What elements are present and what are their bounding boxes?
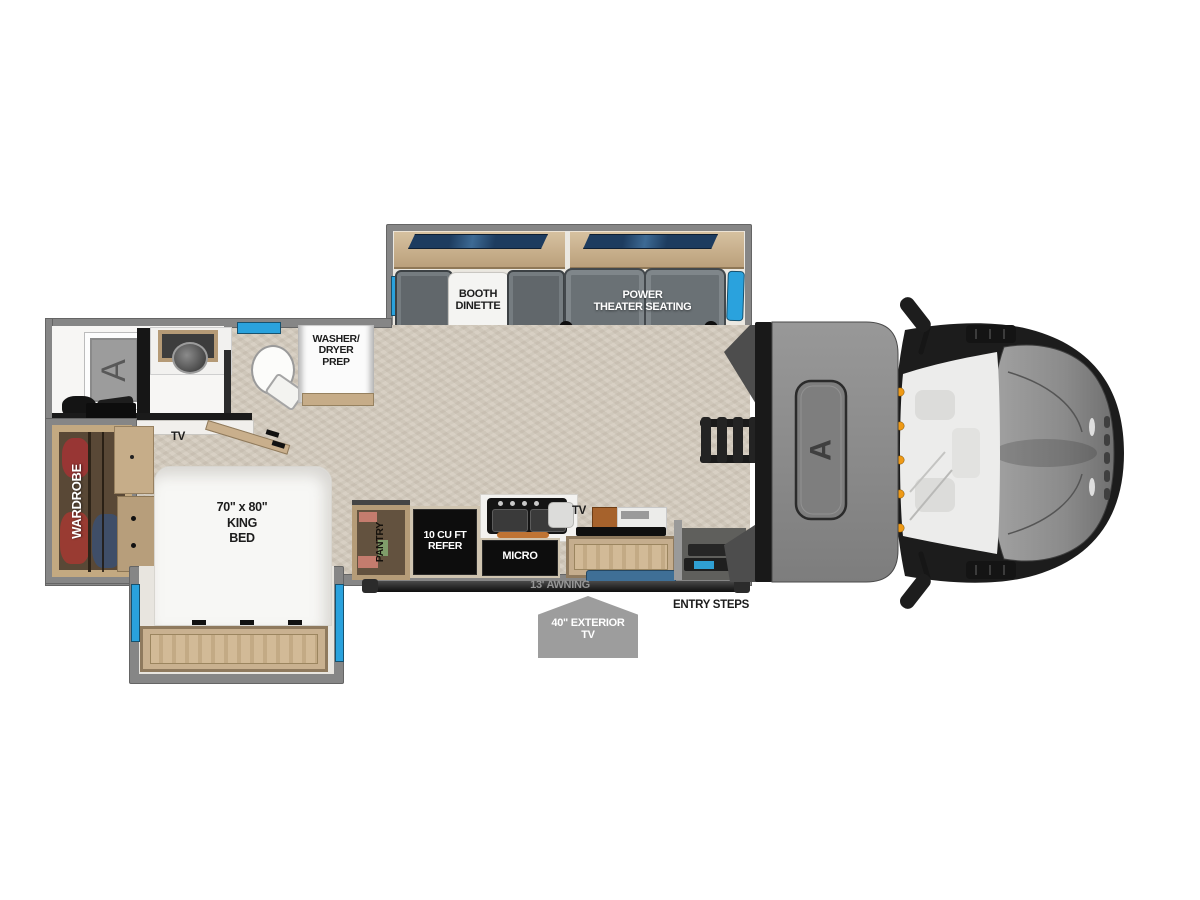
- hood-center-shade: [993, 439, 1097, 467]
- entry-partition-wall: [674, 520, 682, 580]
- windshield: [900, 352, 1000, 554]
- pantry-label: PANTRY: [375, 522, 386, 562]
- king-bed-label: 70" x 80" KING BED: [164, 500, 320, 547]
- kitchen-tv-shelf-item: [621, 511, 649, 519]
- headlight-glint-bottom: [1089, 478, 1095, 496]
- bed-latch-2: [240, 620, 254, 625]
- theater-window: [583, 234, 718, 249]
- washer-label-line2: DRYER: [300, 345, 372, 356]
- awning-label: 13' AWNING: [505, 580, 615, 592]
- cabover-brand-mark: A: [805, 439, 838, 461]
- washer-label-line3: PREP: [300, 357, 372, 368]
- cooktop-knob-2: [510, 501, 515, 506]
- booth-dinette-label: BOOTH DINETTE: [418, 289, 538, 313]
- kitchen-tv-label: TV: [566, 505, 592, 517]
- shower-door-brand-mark: A: [95, 359, 134, 382]
- bed-slideout-accent-right: [335, 584, 344, 662]
- nightstand-upper: [114, 426, 154, 494]
- cabover-black-band: [755, 322, 772, 582]
- cooktop-knob-4: [534, 501, 539, 506]
- bed-footboard-panel: [150, 634, 318, 664]
- nightstand-knob: [130, 455, 134, 459]
- kitchen-tv-console-panel: [574, 544, 668, 570]
- cab-interior-seat-top: [915, 390, 955, 420]
- bed-latch-3: [288, 620, 302, 625]
- dinette-window: [408, 234, 548, 249]
- awning-end-cap-left: [362, 579, 378, 593]
- booth-dinette-label-line2: DINETTE: [418, 301, 538, 313]
- truck-cab: A: [690, 285, 1150, 625]
- bathroom-hall-divider: [224, 350, 231, 416]
- exterior-tv-label-line2: TV: [538, 630, 638, 642]
- headlight-glint-top: [1089, 418, 1095, 436]
- vanity-sink-bowl: [172, 342, 208, 374]
- shower-pan: A: [90, 338, 138, 402]
- roof-vent-top: [966, 325, 1016, 343]
- pantry-label-wrap: PANTRY: [352, 505, 410, 580]
- bathroom-window: [237, 322, 281, 334]
- nightstand-lower: [117, 496, 157, 572]
- exterior-tv-label: 40" EXTERIOR TV: [538, 618, 638, 642]
- cab-interior-console: [952, 428, 980, 478]
- bed-label-line2: KING: [164, 516, 320, 532]
- cooktop-knob: [498, 501, 503, 506]
- wardrobe-label: WARDROBE: [70, 464, 84, 539]
- bed-label-line1: 70" x 80": [164, 500, 320, 516]
- kitchen-tv: [576, 527, 666, 536]
- bedroom-tv-label: TV: [160, 431, 196, 443]
- refer-label-line2: REFER: [410, 541, 480, 552]
- microwave-label: MICRO: [480, 551, 560, 563]
- bed-label-line3: BED: [164, 531, 320, 547]
- roof-vent-bottom: [966, 561, 1016, 579]
- bed-latch: [192, 620, 206, 625]
- nightstand-hinge: [131, 516, 136, 521]
- washer-dryer-base: [302, 393, 374, 406]
- cooktop-knob-3: [522, 501, 527, 506]
- floorplan-canvas: BOOTH DINETTE POWER THEATER SEATING A WA…: [0, 0, 1200, 900]
- cooktop-grate-left: [492, 509, 528, 532]
- bed-slideout-accent-left: [131, 584, 140, 642]
- refrigerator-label: 10 CU FT REFER: [410, 530, 480, 553]
- bathroom-partition: [137, 328, 150, 418]
- nightstand-hinge-2: [131, 543, 136, 548]
- washer-dryer-label: WASHER/ DRYER PREP: [300, 334, 372, 368]
